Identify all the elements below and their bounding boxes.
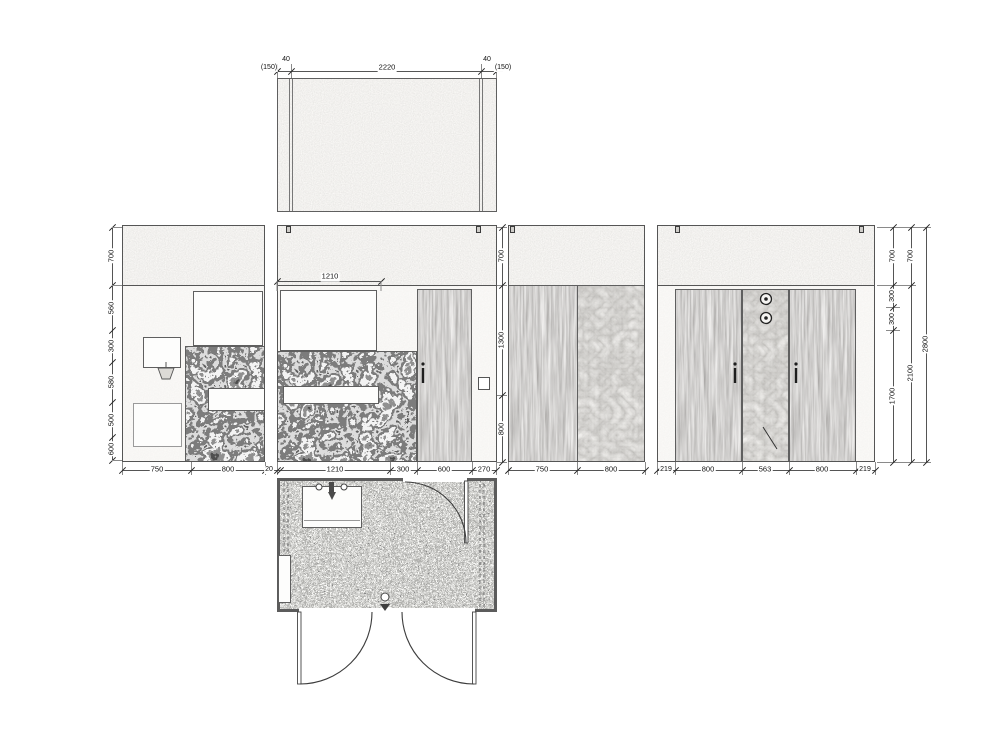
bulkhead-line bbox=[657, 285, 875, 286]
elevation3-ceiling-band bbox=[508, 225, 645, 285]
ceiling-clip-marker bbox=[476, 226, 481, 233]
dim-extension bbox=[112, 285, 122, 286]
dim-label: 560 bbox=[108, 301, 117, 316]
ceiling-clip-marker bbox=[859, 226, 864, 233]
elevation4-wood-door-left bbox=[675, 289, 742, 462]
dim-label: 600 bbox=[108, 442, 117, 457]
dim-extension bbox=[877, 227, 931, 228]
ceiling-clip-marker bbox=[286, 226, 291, 233]
elevation1-basin bbox=[143, 337, 181, 368]
dim-label: 700 bbox=[498, 249, 507, 264]
ceiling-stud-line bbox=[292, 79, 293, 211]
plan-double-door-arc-right bbox=[402, 612, 474, 684]
dim-label: 700 bbox=[108, 249, 117, 264]
dim-label: 750 bbox=[150, 466, 165, 475]
plan-wall-shaft bbox=[278, 555, 291, 603]
elevation2-ceiling-band bbox=[277, 225, 497, 285]
dim-label: 1300 bbox=[498, 331, 507, 350]
dim-label: 800 bbox=[498, 422, 507, 437]
elevation2-mirror bbox=[280, 290, 377, 351]
elevation1-counter bbox=[208, 388, 265, 411]
dim-label: 2100 bbox=[907, 364, 916, 383]
dim-label: 300 bbox=[889, 312, 897, 326]
bulkhead-line bbox=[277, 285, 497, 286]
elevation2-marble-splash bbox=[277, 351, 417, 462]
dim-label: 1210 bbox=[326, 466, 345, 475]
architectural-drawing-sheet: { "sheet": { "type": "bathroom unfolded … bbox=[0, 0, 1000, 750]
ceiling-stud-line bbox=[482, 79, 483, 211]
elevation4-ornate-panel bbox=[742, 289, 789, 462]
dim-label: (150) bbox=[260, 64, 278, 72]
dim-label: 1210 bbox=[321, 273, 340, 282]
dim-extension bbox=[112, 460, 122, 461]
dim-label: 40 bbox=[281, 56, 291, 64]
plan-vanity-counter bbox=[302, 486, 362, 528]
dim-label: 500 bbox=[108, 413, 117, 428]
elevation1-ceiling-band bbox=[122, 225, 265, 285]
elevation2-switch-plate bbox=[478, 377, 490, 390]
dim-label: 40 bbox=[482, 56, 492, 64]
ceiling-clip-marker bbox=[675, 226, 680, 233]
dim-label: 300 bbox=[889, 289, 897, 303]
plan-vanity-edge bbox=[304, 520, 360, 521]
ceiling-stud-line bbox=[479, 79, 480, 211]
elevation4-wood-door-right bbox=[789, 289, 856, 462]
dim-label: 563 bbox=[758, 466, 773, 475]
dim-label: 700 bbox=[889, 249, 898, 264]
dim-label: 750 bbox=[535, 466, 550, 475]
elevation3-ornate-panel bbox=[577, 285, 645, 462]
dim-label: 800 bbox=[701, 466, 716, 475]
dim-label: 600 bbox=[437, 466, 452, 475]
elevation1-bath-panel bbox=[133, 403, 182, 447]
dim-label: 800 bbox=[604, 466, 619, 475]
dim-label: 580 bbox=[108, 375, 117, 390]
dim-label: (150) bbox=[494, 64, 512, 72]
dim-label: 2220 bbox=[378, 64, 397, 73]
dim-label: 300 bbox=[108, 339, 117, 354]
dim-label: 219 bbox=[858, 466, 872, 474]
ceiling-stud-line bbox=[289, 79, 290, 211]
dim-line bbox=[270, 470, 497, 471]
dim-extension bbox=[877, 462, 931, 463]
ceiling-plan bbox=[277, 78, 497, 212]
elevation2-counter bbox=[283, 386, 379, 404]
dim-label: 219 bbox=[659, 466, 673, 474]
plan-double-door-leaf-left bbox=[298, 612, 302, 684]
elevation2-wood-door bbox=[417, 289, 472, 462]
ceiling-clip-marker bbox=[510, 226, 515, 233]
dim-extension bbox=[112, 227, 122, 228]
bulkhead-line bbox=[122, 285, 265, 286]
elevation3-wood-panel bbox=[508, 285, 578, 462]
dim-label: 20 bbox=[264, 466, 274, 474]
dim-label: 800 bbox=[815, 466, 830, 475]
elevation1-mirror bbox=[193, 291, 263, 346]
dim-line bbox=[122, 470, 265, 471]
dim-label: 270 bbox=[477, 466, 492, 475]
dim-label: 300 bbox=[396, 466, 411, 475]
plan-double-door-arc-left bbox=[300, 612, 372, 684]
elevation4-ceiling-band bbox=[657, 225, 875, 285]
plan-double-door-leaf-right bbox=[473, 612, 477, 684]
dim-label: 800 bbox=[221, 466, 236, 475]
dim-label: 1700 bbox=[889, 387, 898, 406]
dim-label: 2800 bbox=[922, 335, 931, 354]
dim-label: 700 bbox=[907, 249, 916, 264]
